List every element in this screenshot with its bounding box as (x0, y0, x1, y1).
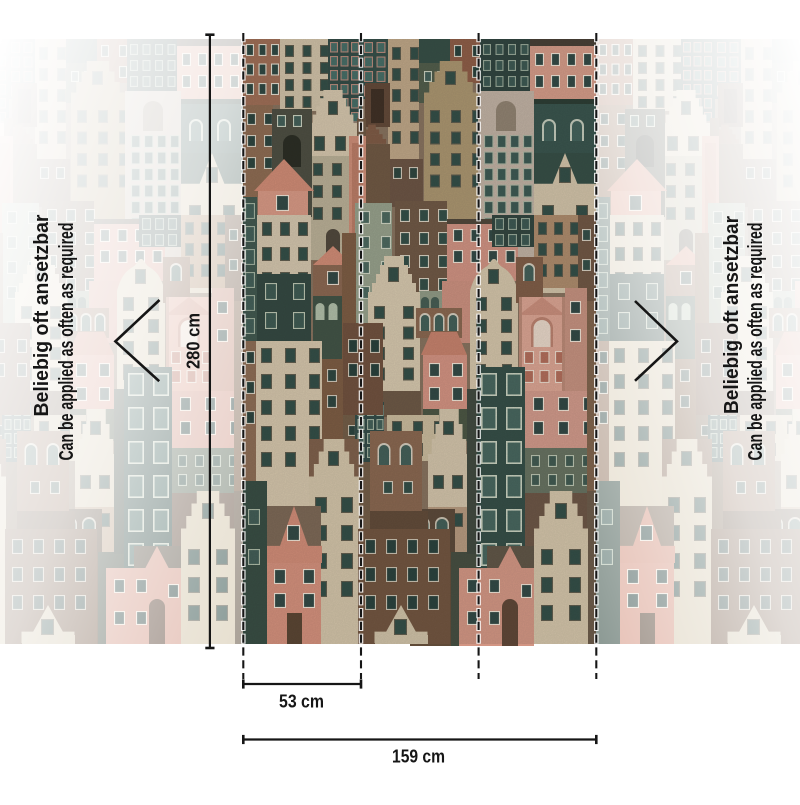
svg-text:280 cm: 280 cm (183, 313, 204, 369)
svg-text:Beliebig oft ansetzbar: Beliebig oft ansetzbar (31, 214, 53, 416)
svg-text:53 cm: 53 cm (279, 691, 324, 712)
svg-text:Can be applied as often as req: Can be applied as often as required (56, 223, 78, 461)
svg-text:Can be applied as often as req: Can be applied as often as required (745, 223, 767, 461)
svg-text:159 cm: 159 cm (392, 746, 445, 767)
svg-text:Beliebig oft ansetzbar: Beliebig oft ansetzbar (721, 216, 743, 414)
